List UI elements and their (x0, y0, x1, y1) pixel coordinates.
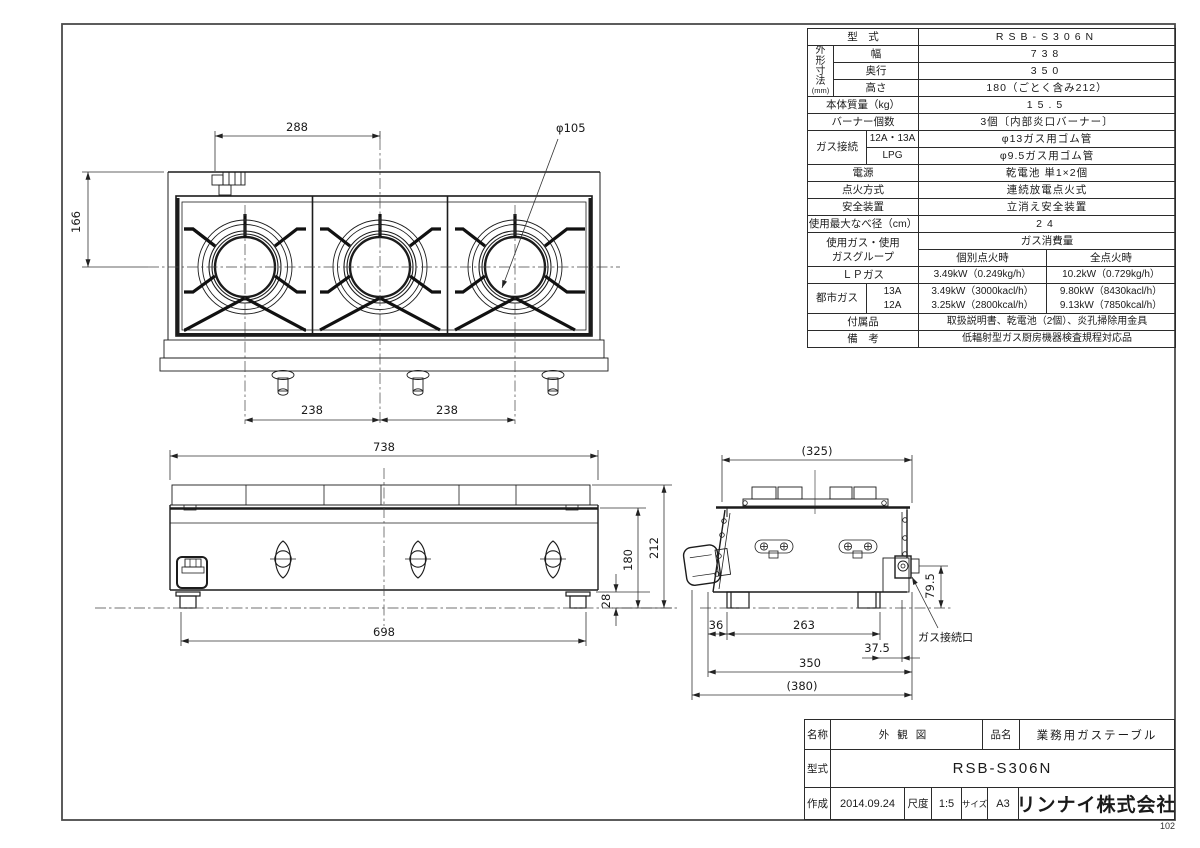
drawing-sheet: 288 φ105 166 238 238 (0, 0, 1200, 848)
battery-box (177, 557, 207, 588)
spec-lpg-label: LPG (867, 148, 919, 165)
spec-12a13a-label: 12A・13A (867, 131, 919, 148)
spec-gas-group-label: 使用ガス・使用 ガスグループ (808, 233, 919, 267)
vents-side (755, 540, 877, 558)
spec-row-power: 電源 乾電池 単1×2個 (808, 165, 1176, 182)
title-size-value: A3 (988, 788, 1019, 819)
spec-pan-label: 使用最大なべ径（cm） (808, 216, 919, 233)
burner-2 (320, 214, 441, 330)
spec-row-ignition: 点火方式 連続放電点火式 (808, 182, 1176, 199)
company-name: リンナイ株式会社 (1019, 788, 1174, 819)
dim-166-label: 166 (69, 211, 83, 233)
spec-row-accessories: 付属品 取扱説明書、乾電池（2個）、炎孔掃除用金具 (808, 314, 1176, 331)
spec-12a13a-value: φ13ガス用ゴム管 (919, 131, 1176, 148)
sheet-number: 102 (1140, 821, 1175, 831)
spec-width-label: 幅 (834, 46, 919, 63)
pilot-fitting-top (212, 172, 245, 195)
title-product-label: 品名 (983, 720, 1020, 749)
spec-height-label: 高さ (834, 80, 919, 97)
spec-row-weight: 本体質量（kg） 15.5 (808, 97, 1176, 114)
spec-row-safety: 安全装置 立消え安全装置 (808, 199, 1176, 216)
spec-row-pan: 使用最大なべ径（cm） 24 (808, 216, 1176, 233)
side-view: (325) 36 263 37.5 350 (380) 79.5 ガス接続口 (683, 444, 973, 700)
spec-row-model: 型 式 RSB-S306N (808, 29, 1176, 46)
spec-city-individual: 3.49kW（3000kacl/h） 3.25kW（2800kcal/h） (919, 284, 1047, 314)
spec-row-burners: バーナー個数 3個〔内部炎口バーナー〕 (808, 114, 1176, 131)
spec-individual-label: 個別点火時 (919, 250, 1047, 267)
dim-212-label: 212 (647, 537, 661, 559)
spec-width-value: 738 (919, 46, 1176, 63)
title-block: 名称 外観図 品名 業務用ガステーブル 型式 RSB-S306N 作成 2014… (804, 719, 1175, 820)
spec-weight-value: 15.5 (919, 97, 1176, 114)
dim-180-label: 180 (621, 549, 635, 571)
spec-power-label: 電源 (808, 165, 919, 182)
title-row-name: 名称 外観図 品名 業務用ガステーブル (805, 720, 1174, 750)
spec-gas-conn-label: ガス接続 (808, 131, 867, 165)
spec-lp-label: ＬＰガス (808, 267, 919, 284)
title-size-label: サイズ (962, 788, 988, 819)
dim-37-5-label: 37.5 (864, 641, 890, 655)
front-view-dims (170, 450, 672, 646)
title-date-value: 2014.09.24 (831, 788, 905, 819)
dim-325-label: (325) (802, 444, 833, 458)
spec-safety-label: 安全装置 (808, 199, 919, 216)
dim-263-label: 263 (793, 618, 815, 632)
title-model-label: 型式 (805, 750, 831, 787)
top-view: 288 φ105 166 238 238 (69, 120, 620, 424)
title-name-label: 名称 (805, 720, 831, 749)
dim-350-label: 350 (799, 656, 821, 670)
spec-row-consumption-header: 使用ガス・使用 ガスグループ ガス消費量 (808, 233, 1176, 250)
spec-remarks-value: 低輻射型ガス厨房機器検査規程対応品 (919, 331, 1176, 348)
spec-row-gas-12a13a: ガス接続 12A・13A φ13ガス用ゴム管 (808, 131, 1176, 148)
gas-connection (883, 556, 919, 592)
spec-burners-label: バーナー個数 (808, 114, 919, 131)
spec-burners-value: 3個〔内部炎口バーナー〕 (919, 114, 1176, 131)
spec-remarks-label: 備 考 (808, 331, 919, 348)
spec-accessories-label: 付属品 (808, 314, 919, 331)
knob-side (683, 543, 732, 587)
dim-36-label: 36 (709, 618, 724, 632)
title-date-label: 作成 (805, 788, 831, 819)
dim-28-label: 28 (599, 594, 613, 609)
dim-738-label: 738 (373, 440, 395, 454)
dim-698-label: 698 (373, 625, 395, 639)
title-product-value: 業務用ガステーブル (1020, 720, 1174, 749)
spec-table: 型 式 RSB-S306N 外形寸法 (mm) 幅 738 奥行 350 高さ … (807, 28, 1176, 348)
spec-pan-value: 24 (919, 216, 1176, 233)
spec-all-label: 全点火時 (1047, 250, 1176, 267)
title-model-value: RSB-S306N (831, 750, 1174, 787)
spec-model-value: RSB-S306N (919, 29, 1176, 46)
spec-city-all: 9.80kW（8430kacl/h） 9.13kW（7850kcal/h） (1047, 284, 1176, 314)
dim-380-label: (380) (787, 679, 818, 693)
spec-ignition-label: 点火方式 (808, 182, 919, 199)
dim-238-right-label: 238 (436, 403, 458, 417)
dim-phi105-label: φ105 (556, 121, 586, 135)
dim-238-left-label: 238 (301, 403, 323, 417)
spec-lp-individual: 3.49kW（0.249kg/h） (919, 267, 1047, 284)
spec-power-value: 乾電池 単1×2個 (919, 165, 1176, 182)
knobs-top (272, 371, 564, 396)
spec-accessories-value: 取扱説明書、乾電池（2個）、炎孔掃除用金具 (919, 314, 1176, 331)
spec-lpg-value: φ9.5ガス用ゴム管 (919, 148, 1176, 165)
dim-79-5-label: 79.5 (923, 573, 937, 599)
spec-weight-label: 本体質量（kg） (808, 97, 919, 114)
spec-row-width: 外形寸法 (mm) 幅 738 (808, 46, 1176, 63)
spec-safety-value: 立消え安全装置 (919, 199, 1176, 216)
spec-ignition-value: 連続放電点火式 (919, 182, 1176, 199)
spec-height-value: 180（ごとく含み212） (919, 80, 1176, 97)
spec-depth-value: 350 (919, 63, 1176, 80)
knobs-front (270, 541, 566, 578)
spec-depth-label: 奥行 (834, 63, 919, 80)
front-view: 738 180 212 28 698 (95, 440, 680, 646)
dim-288-label: 288 (286, 120, 308, 134)
spec-lp-all: 10.2kW（0.729kg/h） (1047, 267, 1176, 284)
title-scale-value: 1:5 (932, 788, 962, 819)
spec-row-lp: ＬＰガス 3.49kW（0.249kg/h） 10.2kW（0.729kg/h） (808, 267, 1176, 284)
spec-city-label: 都市ガス (808, 284, 867, 314)
title-row-meta: 作成 2014.09.24 尺度 1:5 サイズ A3 リンナイ株式会社 (805, 788, 1174, 819)
spec-consumption-header: ガス消費量 (919, 233, 1176, 250)
feet-side (727, 592, 880, 608)
title-row-model: 型式 RSB-S306N (805, 750, 1174, 788)
gas-port-label: ガス接続口 (918, 630, 973, 644)
spec-row-height: 高さ 180（ごとく含み212） (808, 80, 1176, 97)
feet-front (176, 592, 590, 608)
title-scale-label: 尺度 (905, 788, 932, 819)
burner-3 (455, 214, 585, 330)
spec-row-remarks: 備 考 低輻射型ガス厨房機器検査規程対応品 (808, 331, 1176, 348)
title-name-value: 外観図 (831, 720, 983, 749)
spec-model-label: 型 式 (808, 29, 919, 46)
spec-city-sublabels: 13A 12A (867, 284, 919, 314)
spec-row-depth: 奥行 350 (808, 63, 1176, 80)
spec-row-city: 都市ガス 13A 12A 3.49kW（3000kacl/h） 3.25kW（2… (808, 284, 1176, 314)
spec-dims-group: 外形寸法 (mm) (808, 46, 834, 97)
